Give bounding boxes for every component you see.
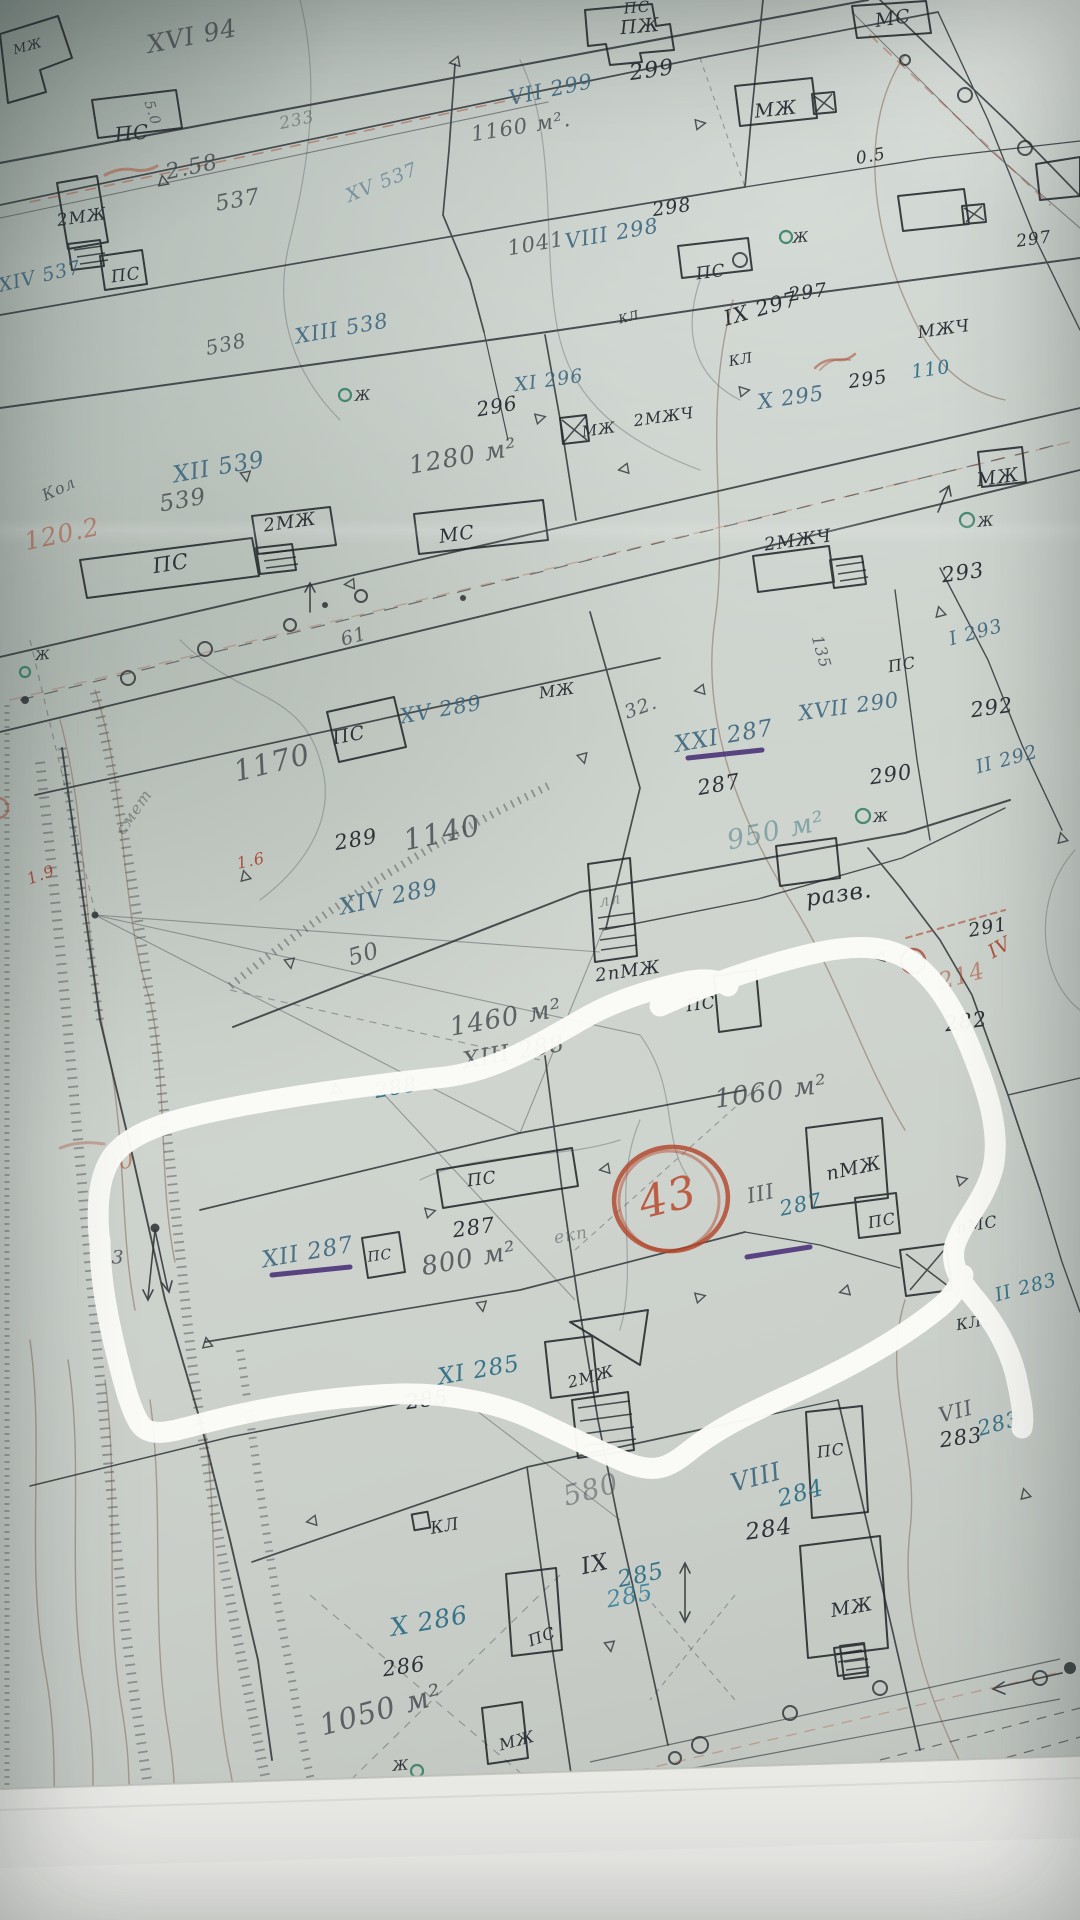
photo-vignette bbox=[0, 0, 1080, 1920]
cadastral-map-photo: МЖXVI 94ПС5.02332.58537XV 5371160 м².VII… bbox=[0, 0, 1080, 1920]
